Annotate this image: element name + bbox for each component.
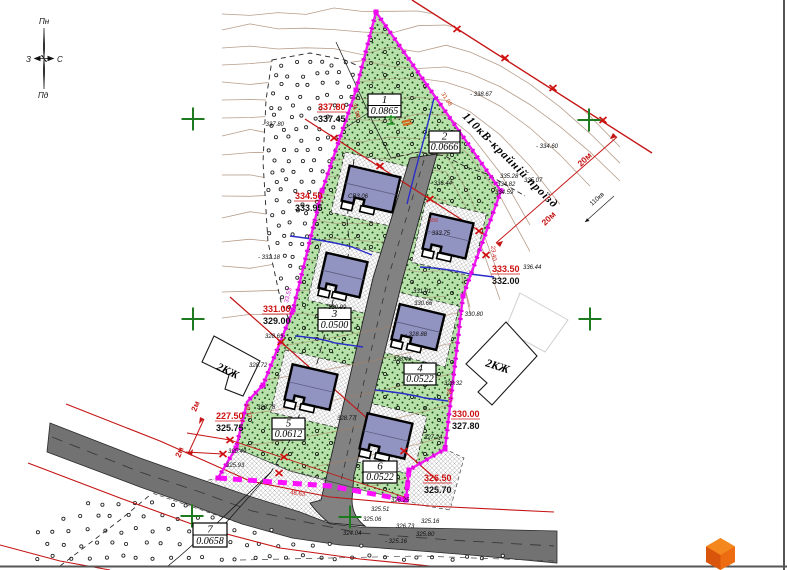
svg-text:330.66: 330.66 [414,301,433,307]
svg-text:С: С [57,55,63,64]
svg-text:- 338.67: - 338.67 [470,92,493,98]
svg-text:7: 7 [207,524,213,536]
svg-text:0.0500: 0.0500 [321,320,349,331]
svg-text:326.50: 326.50 [424,473,452,483]
svg-text:326.25: 326.25 [391,498,410,504]
svg-text:325.80: 325.80 [416,532,435,538]
svg-text:329.00: 329.00 [263,316,291,326]
svg-text:326.73: 326.73 [396,524,415,530]
svg-text:0.0522: 0.0522 [366,472,394,483]
svg-text:328.78: 328.78 [257,405,276,411]
svg-text:328.49: 328.49 [393,357,412,363]
svg-text:334.82: 334.82 [497,182,516,188]
svg-text:- 336.44: - 336.44 [430,181,453,187]
svg-text:328.65: 328.65 [265,334,284,340]
svg-text:330.00: 330.00 [452,409,480,419]
svg-text:332.00: 332.00 [492,276,520,286]
svg-text:- 330.80: - 330.80 [461,312,484,318]
svg-text:СВ3.06: СВ3.06 [348,194,369,200]
svg-text:324.04: 324.04 [343,531,362,537]
svg-text:1: 1 [382,94,388,106]
svg-text:0.0612: 0.0612 [275,429,303,440]
svg-text:337.80: 337.80 [318,102,346,112]
svg-text:- 328.88: - 328.88 [405,332,428,338]
svg-text:2: 2 [442,131,448,143]
svg-text:- 332.18: - 332.18 [258,255,281,261]
svg-text:5: 5 [286,418,292,430]
svg-text:0.0658: 0.0658 [196,536,224,547]
svg-text:· 333.75: · 333.75 [428,231,451,237]
svg-text:6: 6 [377,461,383,473]
svg-text:333.95: 333.95 [295,203,323,213]
svg-text:Пн: Пн [39,17,50,26]
svg-text:327.80: 327.80 [452,421,480,431]
svg-text:334.59: 334.59 [495,190,514,196]
svg-text:325.16: 325.16 [421,519,440,525]
svg-text:325.06: 325.06 [363,517,382,523]
svg-text:328.72: 328.72 [249,363,268,369]
svg-text:331.91: 331.91 [413,289,431,295]
svg-text:328.77: 328.77 [337,416,356,422]
svg-text:Пд: Пд [38,91,49,100]
svg-text:336.44: 336.44 [523,265,542,271]
svg-text:0.0666: 0.0666 [431,142,459,153]
svg-text:- 325.16: - 325.16 [385,539,408,545]
svg-text:330.99: 330.99 [328,305,347,311]
svg-text:337.45: 337.45 [318,114,346,124]
svg-text:0.0522: 0.0522 [406,374,434,385]
svg-text:325.49: 325.49 [228,449,247,455]
svg-text:325.70: 325.70 [424,485,452,495]
svg-text:З: З [26,55,31,64]
svg-text:325.51: 325.51 [371,507,389,513]
svg-text:325.75: 325.75 [216,423,244,433]
svg-text:- 337.80: - 337.80 [262,122,285,128]
svg-text:4: 4 [417,363,423,375]
svg-text:227.50: 227.50 [216,411,244,421]
svg-text:328.32: 328.32 [444,381,463,387]
svg-text:327.24: 327.24 [424,435,443,441]
svg-text:334.50: 334.50 [295,191,323,201]
svg-text:333.50: 333.50 [492,264,520,274]
svg-text:0.0865: 0.0865 [371,106,399,117]
svg-text:331.00: 331.00 [263,304,291,314]
svg-text:556: 556 [429,218,438,224]
svg-text:325.93: 325.93 [226,463,245,469]
svg-text:- 334.60: - 334.60 [536,144,559,150]
